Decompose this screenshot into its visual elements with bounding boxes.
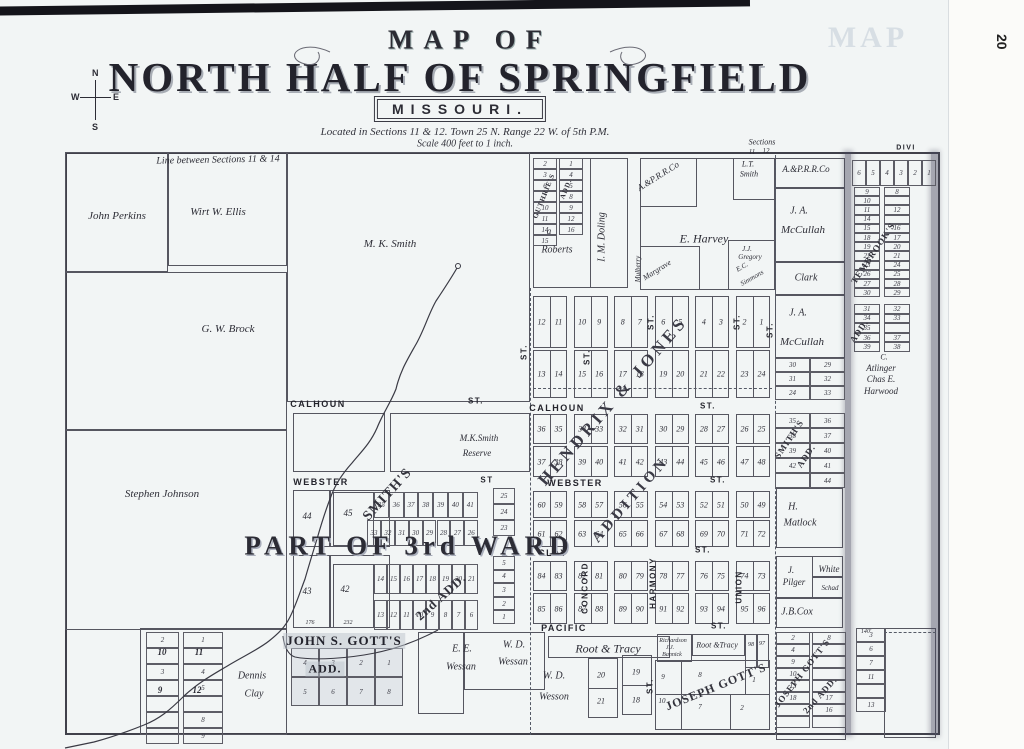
lot-cell: 2 — [776, 632, 810, 644]
boundary-line — [730, 694, 731, 730]
lot-number: 140' — [861, 629, 871, 635]
lot-number: 80 — [619, 572, 627, 581]
lot-cell: 4 — [880, 160, 894, 186]
lot-number: 21 — [597, 697, 605, 706]
lot-number: 65 — [619, 529, 627, 538]
parcel-owner-label: L.T. — [742, 160, 754, 169]
lot-cell: 39 — [854, 342, 880, 352]
street-label: HARMONY — [649, 557, 658, 609]
lot-number: 52 — [700, 500, 708, 509]
lot-cell: 2 — [908, 160, 922, 186]
lot-cell: 30 — [775, 358, 810, 372]
lot-cell: 4 — [559, 169, 583, 180]
lot-number: 68 — [676, 529, 684, 538]
lot-number: 25 — [758, 425, 766, 434]
parcel-owner-label: Root &Tracy — [696, 641, 738, 650]
parcel-owner-label: W. D. — [543, 671, 565, 682]
lot-number: 18 — [632, 696, 640, 705]
lot-number: 24 — [758, 370, 766, 379]
lot-cell: 24 — [775, 386, 810, 400]
parcel-owner-label: White — [819, 564, 840, 574]
lot-number: 31 — [636, 425, 644, 434]
lot-number: 57 — [595, 500, 603, 509]
lot-number: 19 — [632, 668, 640, 677]
lot-divider — [712, 491, 713, 518]
parcel-owner-label: E. Harvey — [680, 232, 729, 247]
lot-number: 12 — [193, 685, 202, 695]
street-label: ST. — [711, 622, 727, 631]
lot-number: 67 — [659, 529, 667, 538]
parcel-owner-label: Dennis — [238, 671, 266, 682]
lot-number: 39 — [578, 457, 586, 466]
lot-number: 35 — [555, 425, 563, 434]
lot-number: 75 — [717, 572, 725, 581]
parcel-owner-label: Smith — [740, 170, 758, 179]
lot-cell: 2 — [347, 648, 375, 677]
lot-number: 42 — [341, 584, 350, 594]
section-dash-line — [530, 288, 531, 735]
parcel-owner-label: Wirt W. Ellis — [190, 206, 246, 218]
lot-cell — [812, 716, 846, 728]
lot-number: 59 — [555, 500, 563, 509]
lot-number: 232 — [344, 620, 353, 626]
lot-cell: 44 — [810, 473, 845, 488]
lot-number: 86 — [555, 604, 563, 613]
lot-number: 3 — [719, 318, 723, 327]
lot-cell: 6 — [852, 160, 866, 186]
parcel-owner-label: Stephen Johnson — [125, 488, 199, 500]
street-label: ST. — [733, 314, 742, 330]
lot-cell: 40 — [448, 492, 463, 518]
lot-number: 93 — [700, 604, 708, 613]
lot-number: 15 — [578, 370, 586, 379]
street-label: ST. — [468, 397, 484, 406]
lot-cell: 33 — [810, 386, 845, 400]
lot-divider — [672, 350, 673, 398]
lot-divider — [550, 491, 551, 518]
parcel-owner-label: McCullah — [781, 224, 825, 236]
lot-cell: 24 — [493, 504, 515, 520]
lot-cell: 16 — [559, 224, 583, 235]
street-label: PACIFIC — [541, 623, 587, 633]
lot-cell: 24 — [884, 261, 910, 270]
lot-cell: 8 — [375, 677, 403, 706]
lot-divider — [550, 350, 551, 398]
lot-number: 14 — [555, 370, 563, 379]
parcel-owner-label: G. W. Brock — [202, 323, 255, 335]
parcel-owner-label: Gregory — [738, 253, 761, 261]
lot-cell: 16 — [812, 704, 846, 716]
lot-cell: 33 — [884, 314, 910, 324]
lot-cell: 4 — [183, 664, 223, 680]
street-label: ST. — [646, 678, 655, 694]
lot-cell: 20 — [884, 242, 910, 251]
lot-number: 91 — [659, 604, 667, 613]
lot-divider — [712, 520, 713, 547]
lot-number: 47 — [741, 457, 749, 466]
lot-cell: 14 — [533, 224, 557, 235]
lot-divider — [631, 561, 632, 591]
lot-number: 77 — [676, 572, 684, 581]
parcel-owner-label: H. — [788, 502, 798, 513]
lot-cell: 9 — [854, 187, 880, 196]
street-label: ST. — [710, 476, 726, 485]
street-label: ST. — [647, 314, 656, 330]
lot-number: 81 — [595, 572, 603, 581]
lot-cell: 30 — [854, 288, 880, 297]
lot-divider — [631, 414, 632, 444]
lot-cell: 1 — [493, 610, 515, 624]
road-band — [931, 152, 938, 735]
lot-divider — [591, 446, 592, 477]
lot-number: 49 — [758, 500, 766, 509]
lot-number: 85 — [538, 604, 546, 613]
parcel-owner-label: Mulberry — [634, 256, 642, 282]
lot-divider — [672, 446, 673, 477]
lot-cell: 12 — [559, 213, 583, 224]
lot-cell: 10 — [854, 196, 880, 205]
lot-number: 1 — [760, 318, 764, 327]
lot-cell: 38 — [418, 492, 433, 518]
lot-cell: 7 — [452, 600, 465, 630]
lot-cell: 37 — [884, 333, 910, 343]
lot-cell: 7 — [347, 677, 375, 706]
scanned-page: MAP OF NORTH HALF OF SPRINGFIELD MISSOUR… — [0, 0, 1024, 749]
lot-number: 92 — [676, 604, 684, 613]
lot-cell: 32 — [884, 304, 910, 314]
lot-cell: 9 — [559, 202, 583, 213]
lot-number: 88 — [595, 604, 603, 613]
lot-cell: 3 — [493, 583, 515, 597]
lot-number: 83 — [555, 572, 563, 581]
parcel-owner-label: Roberts — [541, 245, 572, 256]
lot-number: 51 — [717, 500, 725, 509]
lot-number: 16 — [595, 370, 603, 379]
lot-number: 21 — [700, 370, 708, 379]
lot-number: 22 — [717, 370, 725, 379]
lot-divider — [672, 561, 673, 591]
lot-number: 32 — [619, 425, 627, 434]
parcel-owner-label: 12 — [763, 147, 770, 155]
lot-number: 43 — [303, 586, 312, 596]
lot-cell: 21 — [884, 251, 910, 260]
lot-divider — [672, 491, 673, 518]
lot-cell: 6 — [319, 677, 347, 706]
lot-cell: 37 — [404, 492, 419, 518]
lot-number: 63 — [578, 529, 586, 538]
lot-number: 19 — [659, 370, 667, 379]
lot-number: 26 — [741, 425, 749, 434]
parcel-owner-label: J.B.Cox — [781, 607, 813, 618]
lot-number: 36 — [538, 425, 546, 434]
addition-label: ADD. — [306, 662, 345, 677]
lot-number: 54 — [659, 500, 667, 509]
lot-cell: 11 — [856, 670, 886, 684]
street-label: ST. — [520, 344, 529, 360]
lot-divider — [550, 296, 551, 348]
lot-cell — [884, 323, 910, 333]
lot-cell: 28 — [884, 279, 910, 288]
lot-divider — [753, 593, 754, 624]
street-label: WEBSTER — [293, 477, 349, 487]
lot-divider — [591, 593, 592, 624]
lot-number: 78 — [659, 572, 667, 581]
lot-divider — [712, 296, 713, 348]
lot-cell: 7 — [856, 656, 886, 670]
lot-divider — [753, 414, 754, 444]
parcel-owner-label: J. A. — [789, 308, 807, 319]
lot-number: 4 — [702, 318, 706, 327]
parcel-owner-label: E. E. — [452, 644, 472, 655]
parcel-owner-label: Pilger — [783, 577, 806, 587]
addition-label: PART OF 3rd WARD — [244, 531, 573, 562]
lot-number: 10 — [659, 697, 666, 705]
lot-number: 11 — [195, 647, 204, 657]
lot-number: 46 — [717, 457, 725, 466]
lot-divider — [591, 491, 592, 518]
lot-number: 44 — [676, 457, 684, 466]
lot-cell: 31 — [854, 304, 880, 314]
lot-divider — [712, 593, 713, 624]
lot-cell: 31 — [775, 372, 810, 386]
lot-cell: 1 — [922, 160, 936, 186]
parcel-owner-label: M.K.Smith — [460, 433, 499, 443]
parcel-box — [65, 272, 287, 430]
parcel-owner-label: Harwood — [864, 386, 898, 396]
lot-cell: 14 — [854, 215, 880, 224]
lot-number: 69 — [700, 529, 708, 538]
page-number: 20 — [994, 34, 1010, 50]
lot-number: 50 — [741, 500, 749, 509]
lot-number: 176 — [306, 620, 315, 626]
street-label: CALHOUN — [290, 399, 346, 409]
lot-cell: 15 — [854, 224, 880, 233]
parcel-box — [293, 413, 385, 472]
lot-divider — [753, 296, 754, 348]
parcel-owner-label: Bannick — [662, 652, 682, 658]
lot-number: 96 — [758, 604, 766, 613]
lot-cell: 2 — [533, 158, 557, 169]
lot-cell — [183, 696, 223, 712]
lot-cell — [775, 473, 810, 488]
lot-number: 41 — [619, 457, 627, 466]
lot-cell: 5 — [183, 680, 223, 696]
lot-cell: 1 — [375, 648, 403, 677]
lot-cell: 29 — [884, 288, 910, 297]
lot-cell: 3 — [146, 664, 179, 680]
parcel-owner-label: W. D. — [503, 640, 525, 651]
lot-divider — [753, 350, 754, 398]
lot-number: 79 — [636, 572, 644, 581]
lot-divider — [712, 350, 713, 398]
lot-number: 89 — [619, 604, 627, 613]
lot-divider — [631, 593, 632, 624]
parcel-box — [293, 555, 330, 628]
street-label: ST — [480, 476, 493, 485]
lot-cell: 2 — [493, 597, 515, 611]
lot-divider — [550, 414, 551, 444]
parcel-box — [640, 246, 700, 290]
lot-number: 40 — [595, 457, 603, 466]
lot-divider — [672, 414, 673, 444]
lot-cell: 5 — [866, 160, 880, 186]
parcel-owner-label: Schad — [821, 584, 838, 592]
lot-number: 44 — [303, 511, 312, 521]
lot-cell: 4 — [493, 570, 515, 584]
lot-cell: 11 — [400, 600, 413, 630]
parcel-owner-label: Wessan — [498, 657, 528, 668]
lot-number: 9 — [661, 673, 665, 681]
lot-number: 45 — [344, 508, 353, 518]
lot-number: 8 — [621, 318, 625, 327]
ghost-bleedthrough-text: MAP — [828, 21, 908, 55]
lot-number: 11 — [555, 318, 562, 327]
section-dash-line — [884, 632, 936, 633]
lot-number: 66 — [636, 529, 644, 538]
lot-cell — [776, 716, 810, 728]
lot-number: 84 — [538, 572, 546, 581]
lot-cell: 13 — [374, 600, 387, 630]
lot-number: 2 — [740, 704, 744, 712]
lot-number: 1 — [752, 676, 756, 684]
lot-cell: 3 — [894, 160, 908, 186]
lot-cell — [884, 196, 910, 205]
parcel-owner-label: J. — [788, 565, 794, 575]
street-label: DIVI — [896, 145, 916, 152]
parcel-owner-label: Matlock — [784, 518, 817, 529]
lot-divider — [753, 520, 754, 547]
lot-number: 9 — [158, 685, 163, 695]
street-label: CONCORD — [581, 562, 590, 614]
lot-cell: 14 — [374, 564, 387, 594]
lot-number: 12 — [538, 318, 546, 327]
map-paper: MAP OF NORTH HALF OF SPRINGFIELD MISSOUR… — [0, 0, 949, 749]
lot-divider — [591, 561, 592, 591]
parcel-owner-label: McCullah — [780, 336, 824, 348]
parcel-owner-label: Wesson — [539, 692, 569, 703]
lot-cell: 13 — [856, 698, 886, 712]
lot-number: 97 — [759, 641, 765, 647]
lot-number: 76 — [700, 572, 708, 581]
lot-cell — [146, 712, 179, 728]
parcel-box — [333, 564, 374, 628]
lot-cell: 15 — [387, 564, 400, 594]
lot-divider — [550, 593, 551, 624]
parcel-owner-label: Clay — [245, 689, 264, 700]
lot-cell: 2 — [146, 632, 179, 648]
lot-divider — [672, 520, 673, 547]
parcel-owner-label: John Perkins — [88, 210, 146, 222]
parcel-box — [287, 152, 530, 402]
parcel-owner-label: M. K. Smith — [364, 238, 417, 250]
lot-number: 53 — [676, 500, 684, 509]
lot-cell: 1 — [559, 158, 583, 169]
lot-cell: 8 — [884, 187, 910, 196]
lot-cell: 4 — [776, 644, 810, 656]
lot-cell: 5 — [291, 677, 319, 706]
parcel-owner-label: a — [547, 226, 552, 236]
lot-number: 60 — [538, 500, 546, 509]
lot-cell: 32 — [810, 372, 845, 386]
street-label: ST. — [583, 349, 592, 365]
lot-number: 70 — [717, 529, 725, 538]
lot-number: 45 — [700, 457, 708, 466]
lot-divider — [712, 561, 713, 591]
lot-divider — [712, 446, 713, 477]
addition-label: JOHN S. GOTT'S — [283, 633, 405, 649]
lot-cell: 17 — [413, 564, 426, 594]
lot-cell: 39 — [433, 492, 448, 518]
lot-cell: 25 — [884, 270, 910, 279]
lot-cell: 36 — [810, 413, 845, 428]
street-label: CALHOUN — [529, 403, 585, 413]
parcel-owner-label: Atlinger — [866, 363, 896, 373]
lot-number: 94 — [717, 604, 725, 613]
lot-cell: 6 — [856, 642, 886, 656]
lot-number: 98 — [748, 642, 754, 648]
map-canvas: 1211109876543211314151617181920212223243… — [0, 0, 948, 749]
lot-number: 48 — [758, 457, 766, 466]
lot-cell: 12 — [884, 205, 910, 214]
lot-cell: 9 — [183, 728, 223, 744]
lot-number: 2 — [743, 318, 747, 327]
lot-number: 7 — [638, 318, 642, 327]
parcel-box — [884, 628, 936, 738]
lot-divider — [631, 446, 632, 477]
lot-number: 29 — [676, 425, 684, 434]
parcel-owner-label: I. M. Doling — [597, 212, 608, 261]
parcel-owner-label: Root & Tracy — [575, 642, 640, 657]
lot-divider — [753, 491, 754, 518]
lot-divider — [753, 561, 754, 591]
lot-divider — [753, 446, 754, 477]
lot-cell: 16 — [400, 564, 413, 594]
lot-number: 10 — [578, 318, 586, 327]
lot-cell: 6 — [465, 600, 478, 630]
boundary-line — [588, 688, 618, 689]
parcel-owner-label: Sections — [749, 138, 776, 147]
parcel-owner-label: J. A. — [790, 206, 808, 217]
lot-number: 13 — [538, 370, 546, 379]
lot-number: 58 — [578, 500, 586, 509]
parcel-owner-label: A.&P.R.R.Co — [782, 164, 829, 174]
lot-cell: 25 — [493, 488, 515, 504]
street-label: ST. — [700, 402, 716, 411]
lot-divider — [631, 520, 632, 547]
parcel-owner-label: J.J. — [742, 245, 752, 253]
lot-number: 28 — [700, 425, 708, 434]
parcel-owner-label: J.J. — [666, 645, 674, 651]
lot-cell: 38 — [884, 342, 910, 352]
lot-number: 73 — [758, 572, 766, 581]
lot-cell: 1 — [183, 632, 223, 648]
lot-number: 8 — [698, 671, 702, 679]
parcel-owner-label: C. — [880, 353, 887, 362]
lot-cell: 11 — [854, 205, 880, 214]
lot-cell: 12 — [387, 600, 400, 630]
lot-number: 95 — [741, 604, 749, 613]
lot-number: 10 — [158, 647, 167, 657]
lot-divider — [591, 296, 592, 348]
lot-cell — [146, 696, 179, 712]
parcel-owner-label: Chas E. — [867, 374, 896, 384]
parcel-owner-label: Richardson — [659, 638, 686, 644]
lot-cell: 41 — [463, 492, 478, 518]
lot-divider — [712, 414, 713, 444]
lot-number: 20 — [597, 671, 605, 680]
parcel-box — [775, 295, 845, 358]
parcel-owner-label: Wessan — [446, 662, 476, 673]
